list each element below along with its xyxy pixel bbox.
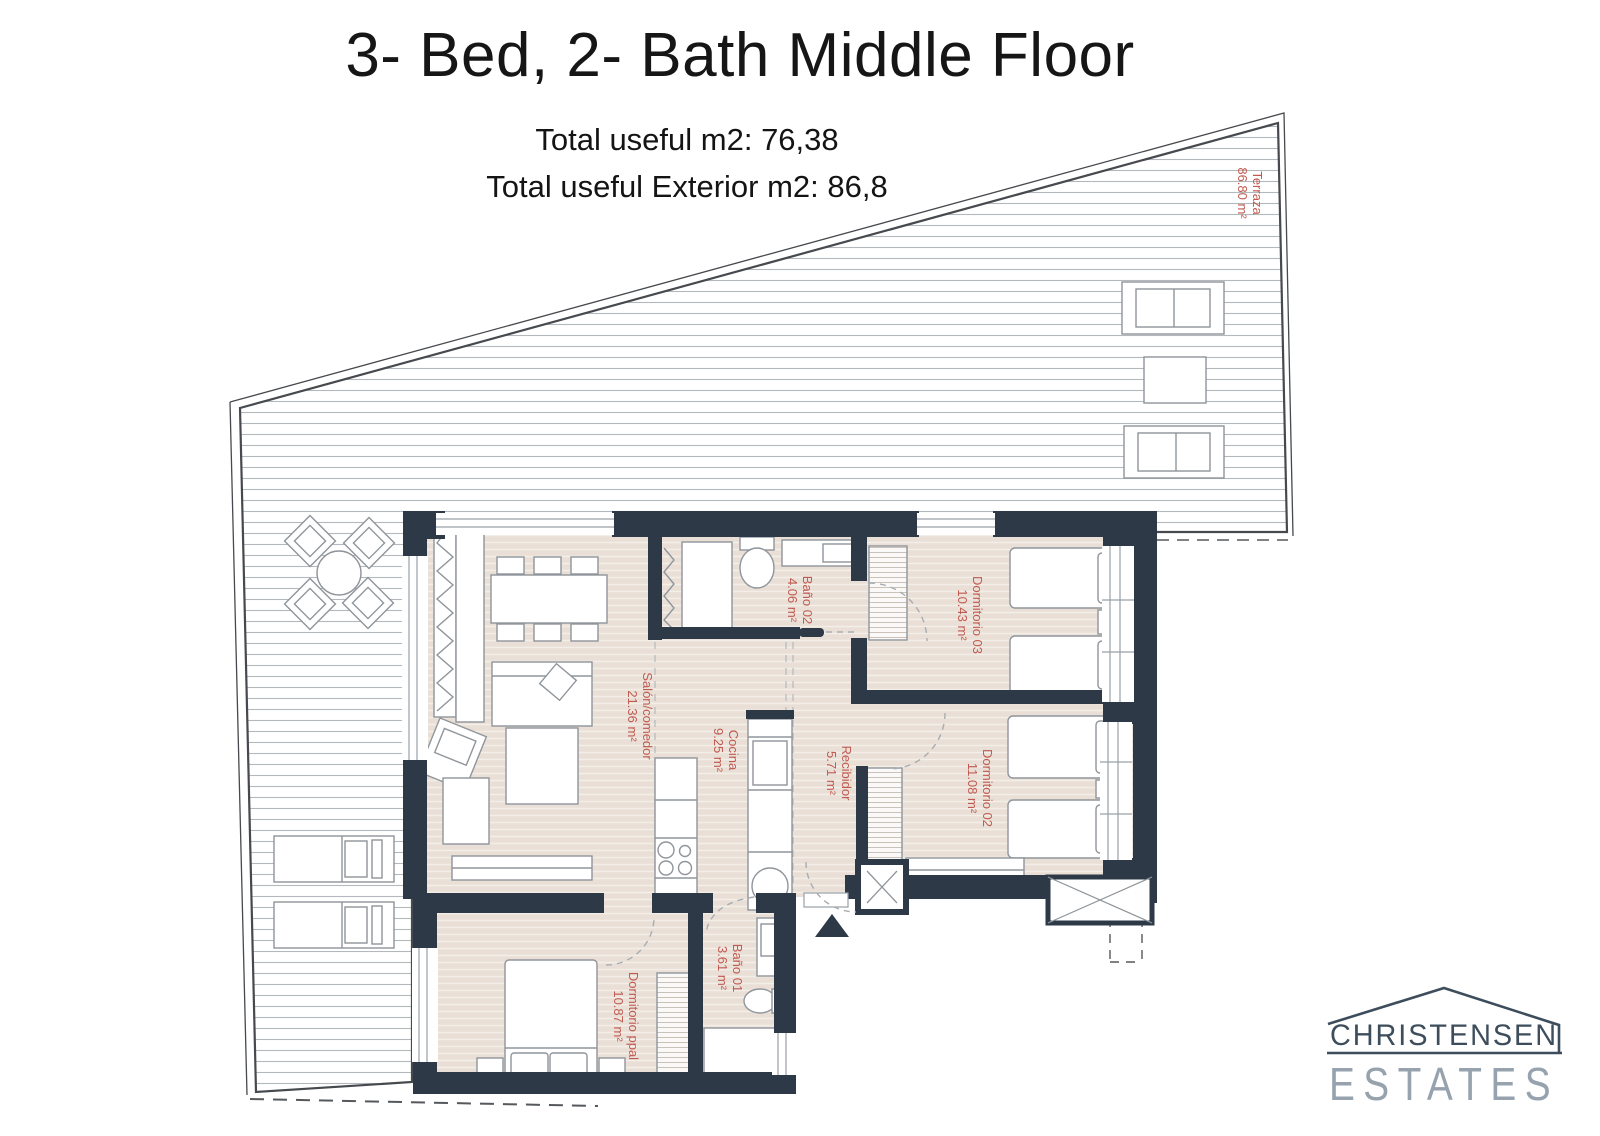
toilet [744, 989, 776, 1013]
logo-subname: ESTATES [1329, 1058, 1559, 1110]
logo-name: CHRISTENSEN [1330, 1019, 1558, 1052]
stove-burner [659, 861, 673, 875]
dining-table [491, 575, 607, 623]
washbasin [823, 544, 854, 562]
coffee-table [506, 728, 578, 804]
round-table [317, 551, 361, 595]
sofa [492, 662, 592, 726]
stove-burner [680, 846, 691, 857]
room-label-recibidor: Recibidor5.71 m² [824, 746, 854, 802]
pocket-door [799, 628, 824, 637]
cabinet [456, 526, 484, 722]
room-label-bano01: Baño 013.61 m² [715, 944, 745, 992]
apartment [402, 511, 1157, 1094]
subtitle-block: Total useful m2: 76,38 Total useful Exte… [0, 116, 1374, 210]
stove-burner [658, 842, 674, 858]
total-useful-exterior-area: Total useful Exterior m2: 86,8 [0, 163, 1374, 210]
room-label-bano02: Baño 024.06 m² [785, 576, 815, 624]
logo: CHRISTENSEN ESTATES [1327, 988, 1562, 1110]
louver-strip [434, 527, 456, 717]
fridge [753, 741, 787, 785]
total-useful-area: Total useful m2: 76,38 [0, 116, 1374, 163]
wardrobe [864, 768, 902, 868]
room-label-cocina: Cocina9.25 m² [711, 728, 741, 773]
page-title: 3- Bed, 2- Bath Middle Floor [0, 20, 1480, 91]
chaise [443, 778, 489, 844]
entrance-threshold [804, 893, 848, 907]
boundary-dashed-bottom [250, 1099, 598, 1106]
shower [682, 542, 732, 628]
toilet [740, 548, 774, 588]
stove-burner [679, 862, 692, 875]
entrance-arrow [815, 914, 849, 937]
master-bedroom-furniture [477, 960, 697, 1086]
